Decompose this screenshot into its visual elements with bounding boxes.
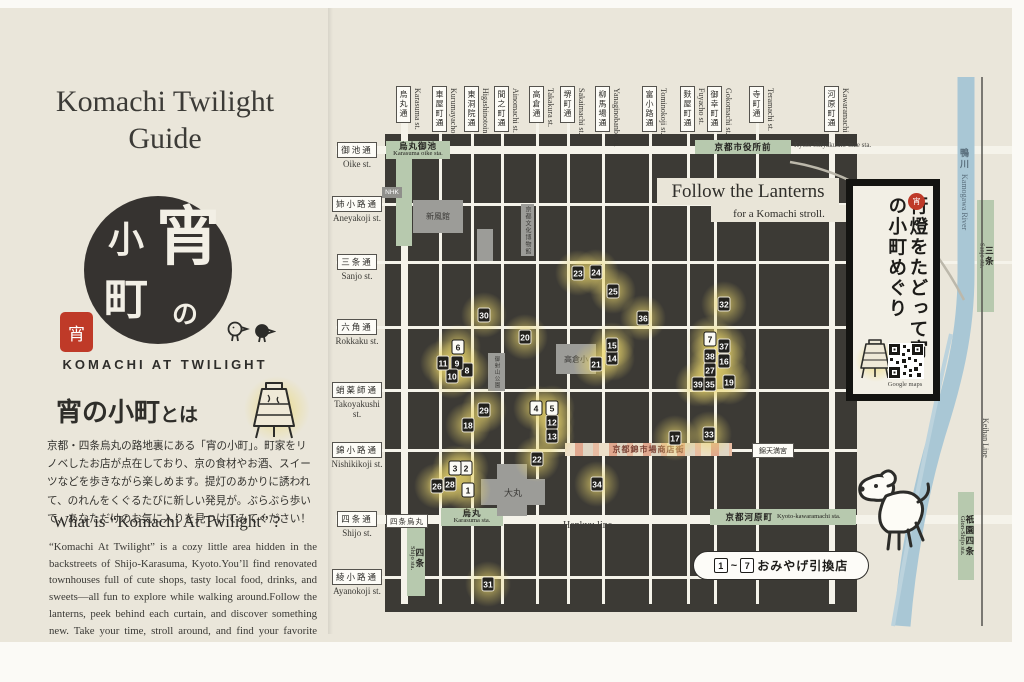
lantern-tour-banner: 宵 行燈をたどって宵の小町めぐり	[846, 179, 940, 401]
map-marker-34: 34	[591, 477, 604, 492]
about-heading: 宵の小町とは	[56, 392, 198, 429]
station-name-jp: 京都河原町	[725, 513, 773, 522]
logo-subtitle: KOMACHI AT TWILIGHT	[0, 357, 330, 372]
street-label-jp: 烏丸通	[396, 86, 411, 123]
street-label-romaji: Ayanokoji st.	[330, 586, 384, 596]
station-name-romaji: Karasuma oike sta.	[393, 151, 443, 158]
building-御射山公園: 御射山公園	[488, 353, 505, 391]
map-marker-39: 39	[692, 377, 705, 392]
map-marker-16: 16	[718, 354, 731, 369]
map-marker-13: 13	[546, 429, 559, 444]
street-label-jp: 御池通	[337, 142, 377, 158]
street-label-jp: 姉小路通	[332, 196, 382, 212]
building-新風館: 新風館	[413, 200, 463, 233]
street-label-jp: 堺町通	[560, 86, 575, 123]
lantern-icon	[250, 380, 300, 442]
banner-seal-icon: 宵	[908, 193, 925, 210]
street-label-jp: 六角通	[337, 319, 377, 335]
street-label-romaji: Gokomachi st.	[724, 86, 733, 135]
station-name-romaji: Kyoto-kawaramachi sta.	[777, 514, 841, 521]
leaflet-scan: Komachi Twilight Guide 小 宵 町 の 宵 KOMACHI…	[0, 0, 1024, 682]
map-marker-17: 17	[669, 431, 682, 446]
legend-range-separator: ~	[731, 560, 737, 572]
qr-code	[888, 343, 924, 379]
street-label-romaji: Teramachi st.	[766, 86, 775, 131]
red-seal-stamp: 宵	[60, 312, 93, 352]
map-marker-29: 29	[478, 403, 491, 418]
about-heading-suffix: とは	[160, 405, 198, 426]
birds-icon	[224, 316, 276, 344]
map-marker-6: 6	[452, 340, 465, 355]
kamogawa-label: 鴨川 Kamogawa River	[958, 148, 971, 230]
street-label-jp: 間之町通	[494, 86, 509, 132]
street-teramachi-st-	[756, 90, 759, 604]
map-marker-10: 10	[446, 369, 459, 384]
dog-illustration	[852, 462, 938, 558]
map-marker-25: 25	[607, 284, 620, 299]
street-label-romaji: Takoyakushi st.	[330, 399, 384, 419]
street-label-jp: 三条通	[337, 254, 377, 270]
street-label-romaji: Takakura st.	[546, 86, 555, 127]
map-marker-3: 3	[449, 461, 462, 476]
map-marker-31: 31	[482, 577, 495, 592]
nhk-building: NHK	[382, 187, 402, 198]
street-label-romaji: Fuyacho st.	[697, 86, 706, 125]
map-marker-4: 4	[530, 401, 543, 416]
street-label-gokomachi-st-: 御幸町通Gokomachi st.	[707, 86, 733, 135]
map-marker-24: 24	[590, 265, 603, 280]
station-name-jp: 京都市役所前	[714, 143, 771, 152]
map-marker-22: 22	[531, 452, 544, 467]
souvenir-legend: 1 ~ 7 おみやげ引換店	[693, 551, 869, 580]
street-label-fuyacho-st-: 麩屋町通Fuyacho st.	[680, 86, 706, 132]
logo-char-ko: 小	[108, 222, 144, 258]
street-label-romaji: Sakaimachi st.	[577, 86, 586, 135]
street-label-teramachi-st-: 寺町通Teramachi st.	[749, 86, 775, 131]
building-京都文化博物館: 京都文化博物館	[521, 204, 534, 256]
street-label-romaji: Higashinotoin st.	[481, 86, 490, 143]
street-label-romaji: Kawaramachi st.	[841, 86, 850, 142]
building-block-2	[477, 229, 493, 261]
qr-caption: Google maps	[882, 381, 928, 388]
station-kyoto-shiyakusho-mae-sta-: 京都市役所前	[695, 140, 791, 154]
street-label-romaji: Ainomachi st.	[511, 86, 520, 133]
map-marker-14: 14	[606, 351, 619, 366]
station-karasuma-oike-sta-: 烏丸御池Karasuma oike sta.	[386, 141, 450, 159]
map-marker-37: 37	[718, 339, 731, 354]
street-label-ainomachi-st-: 間之町通Ainomachi st.	[494, 86, 520, 133]
street-label-jp: 高倉通	[529, 86, 544, 123]
street-ainomachi-st-	[501, 90, 504, 604]
street-label-takoyakushi-st-: 蛸薬師通Takoyakushi st.	[330, 380, 384, 419]
map-marker-1: 1	[462, 483, 475, 498]
street-label-takakura-st-: 高倉通Takakura st.	[529, 86, 555, 127]
map-marker-15: 15	[606, 338, 619, 353]
map-marker-7: 7	[704, 332, 717, 347]
street-label-jp: 車屋町通	[432, 86, 447, 132]
street-label-romaji: Aneyakoji st.	[330, 213, 384, 223]
street-label-sakaimachi-st-: 堺町通Sakaimachi st.	[560, 86, 586, 135]
map-marker-18: 18	[462, 418, 475, 433]
street-label-jp: 錦小路通	[332, 442, 382, 458]
map: 烏丸御池Karasuma oike sta.京都市役所前Kyoto Shiyak…	[330, 0, 1012, 634]
map-marker-32: 32	[718, 297, 731, 312]
street-label-jp: 麩屋町通	[680, 86, 695, 132]
station-kyoto-kawaramachi-sta-: 京都河原町Kyoto-kawaramachi sta.	[710, 509, 856, 525]
logo-char-yoi: 宵	[156, 206, 220, 270]
map-marker-28: 28	[444, 477, 457, 492]
kamogawa-label-en: Kamogawa River	[960, 174, 969, 230]
street-label-yanaginobanba-st-: 柳馬場通Yanaginobanba st.	[595, 86, 621, 147]
street-label-romaji: Shijo st.	[330, 528, 384, 538]
street-label-jp: 柳馬場通	[595, 86, 610, 132]
street-label-jp: 東洞院通	[464, 86, 479, 132]
map-marker-20: 20	[519, 330, 532, 345]
map-marker-33: 33	[703, 427, 716, 442]
street-label-romaji: Kurumayacho st.	[449, 86, 458, 143]
keihan-line-label: Keihan Line	[981, 418, 990, 458]
station-name-jp: 四条	[415, 548, 424, 569]
logo-char-no: の	[172, 302, 198, 328]
banner-inner: 宵 行燈をたどって宵の小町めぐり	[851, 184, 935, 396]
map-marker-12: 12	[546, 415, 559, 430]
street-label-ayanokoji-st-: 綾小路通Ayanokoji st.	[330, 567, 384, 596]
street-label-aneyakoji-st-: 姉小路通Aneyakoji st.	[330, 194, 384, 223]
street-label-rokkaku-st-: 六角通Rokkaku st.	[330, 317, 384, 346]
legend-range-end: 7	[740, 558, 754, 573]
legend-range-start: 1	[714, 558, 728, 573]
street-label-tominokoji-st-: 富小路通Tominokoji st.	[642, 86, 668, 135]
map-marker-35: 35	[704, 377, 717, 392]
street-label-shijo-st-: 四条通Shijo st.	[330, 509, 384, 538]
map-marker-30: 30	[478, 308, 491, 323]
street-label-higashinotoin-st-: 東洞院通Higashinotoin st.	[464, 86, 490, 143]
map-marker-36: 36	[637, 311, 650, 326]
street-label-romaji: Tominokoji st.	[659, 86, 668, 135]
street-label-kurumayacho-st-: 車屋町通Kurumayacho st.	[432, 86, 458, 143]
street-label-romaji: Sanjo st.	[330, 271, 384, 281]
street-label-romaji: Nishikikoji st.	[330, 459, 384, 469]
street-label-romaji: Rokkaku st.	[330, 336, 384, 346]
nishiki-tenmangu-label: 錦天満宮	[752, 443, 794, 458]
scan-edge-right	[1012, 0, 1024, 682]
street-label-jp: 御幸町通	[707, 86, 722, 132]
station-name-romaji: Karasuma sta.	[454, 518, 491, 525]
map-marker-21: 21	[590, 357, 603, 372]
follow-the-lanterns-subtitle: for a Komachi stroll.	[711, 205, 847, 222]
street-label-romaji: Karasuma st.	[413, 86, 422, 130]
street-label-jp: 蛸薬師通	[332, 382, 382, 398]
map-marker-23: 23	[572, 266, 585, 281]
street-label-romaji: Oike st.	[330, 159, 384, 169]
scan-edge-bottom	[0, 642, 1024, 682]
map-marker-38: 38	[704, 349, 717, 364]
guide-title: Komachi Twilight Guide	[30, 84, 300, 157]
street-label-jp: 綾小路通	[332, 569, 382, 585]
what-heading: What is “Komachi At Twilight” ?	[53, 512, 280, 532]
kamogawa-label-jp: 鴨川	[959, 148, 969, 170]
street-takoyakushi-st-	[336, 389, 857, 392]
shijo-karasuma-label: 四条烏丸	[386, 514, 428, 528]
street-label-nishikikoji-st-: 錦小路通Nishikikoji st.	[330, 440, 384, 469]
street-label-jp: 富小路通	[642, 86, 657, 132]
street-label-jp: 河原町通	[824, 86, 839, 132]
street-label-kawaramachi-st-: 河原町通Kawaramachi st.	[824, 86, 850, 142]
street-label-romaji: Yanaginobanba st.	[612, 86, 621, 147]
street-label-jp: 四条通	[337, 511, 377, 527]
map-marker-5: 5	[546, 401, 559, 416]
hankyu-line-label: Hankyu line	[563, 520, 612, 531]
scan-edge-top	[0, 0, 1024, 8]
map-marker-11: 11	[437, 356, 450, 371]
map-marker-27: 27	[704, 363, 717, 378]
street-label-karasuma-st-: 烏丸通Karasuma st.	[396, 86, 422, 130]
map-marker-19: 19	[723, 375, 736, 390]
street-label-sanjo-st-: 三条通Sanjo st.	[330, 252, 384, 281]
street-tominokoji-st-	[649, 90, 652, 604]
logo-char-machi: 町	[104, 278, 148, 322]
komachi-logo: 小 宵 町 の	[84, 196, 232, 344]
station-name-romaji: Shijo sta.	[408, 546, 415, 570]
station-shijo-sta-: 四条Shijo sta.	[407, 520, 425, 596]
street-label-oike-st-: 御池通Oike st.	[330, 140, 384, 169]
what-body: “Komachi At Twilight” is a cozy little a…	[49, 539, 317, 656]
map-marker-26: 26	[431, 479, 444, 494]
street-label-jp: 寺町通	[749, 86, 764, 123]
legend-label: おみやげ引換店	[757, 557, 848, 574]
about-heading-main: 宵の小町	[56, 397, 160, 427]
follow-the-lanterns-title: Follow the Lanterns	[657, 178, 839, 205]
banner-lantern-icon	[858, 338, 892, 380]
